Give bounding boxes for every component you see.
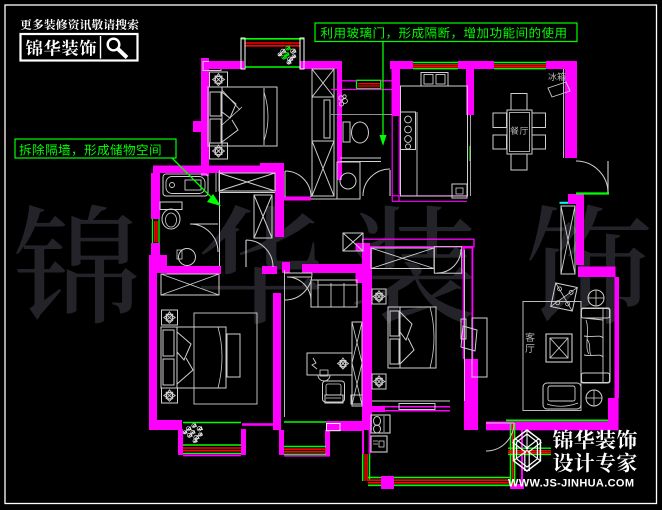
svg-text:WWW.JS-JINHUA.COM: WWW.JS-JINHUA.COM	[508, 478, 634, 490]
